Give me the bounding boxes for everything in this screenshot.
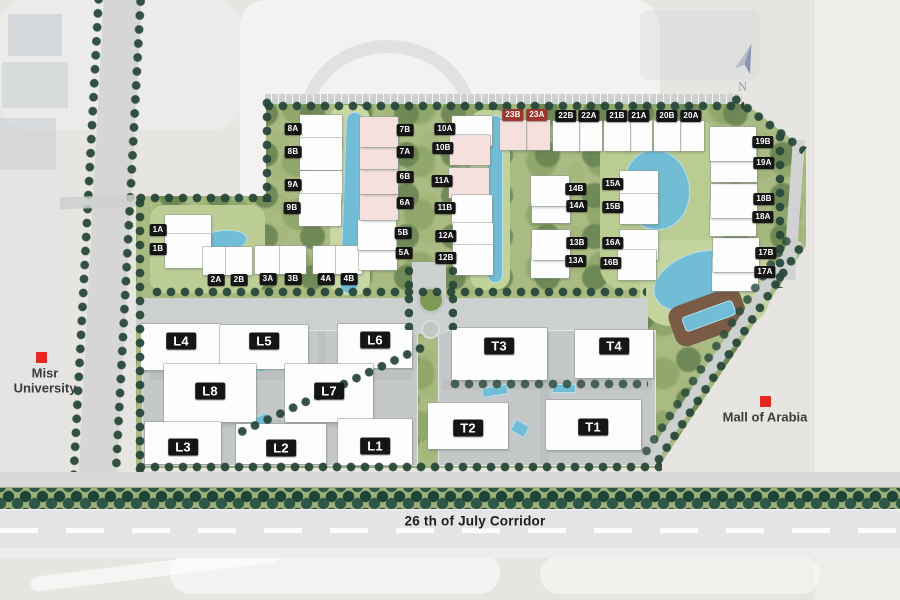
building-15B (620, 194, 658, 224)
plot-label-15A[interactable]: 15A (602, 178, 623, 190)
building-11B (452, 195, 492, 225)
building-20A (678, 121, 704, 151)
building-6A (360, 190, 398, 220)
plot-label-13B[interactable]: 13B (566, 237, 587, 249)
plot-label-L1[interactable]: L1 (360, 438, 390, 455)
plot-label-3B[interactable]: 3B (285, 273, 302, 285)
plot-label-2B[interactable]: 2B (231, 274, 248, 286)
plot-label-4B[interactable]: 4B (341, 273, 358, 285)
plot-label-1B[interactable]: 1B (150, 243, 167, 255)
interchange-ramp (540, 556, 820, 594)
corridor-tree-line (0, 488, 900, 509)
plot-label-21A[interactable]: 21A (628, 110, 649, 122)
mall-of-arabia-marker (760, 396, 771, 407)
north-arrow-icon (728, 42, 766, 78)
north-label: N (738, 79, 747, 95)
plot-label-5B[interactable]: 5B (395, 227, 412, 239)
background-terrain-patch (0, 170, 70, 480)
plot-label-7A[interactable]: 7A (397, 146, 414, 158)
mall-of-arabia-label: Mall of Arabia (723, 409, 808, 424)
plot-label-L3[interactable]: L3 (168, 439, 198, 456)
misr-university-label: MisrUniversity (14, 366, 77, 397)
building-7B (360, 117, 398, 147)
background-building (2, 62, 68, 108)
plot-label-11A[interactable]: 11A (432, 175, 453, 187)
corridor-green-verge (0, 487, 900, 509)
building-5B (358, 220, 396, 250)
plot-label-T1[interactable]: T1 (578, 419, 608, 436)
plot-label-2A[interactable]: 2A (208, 274, 225, 286)
plot-label-9A[interactable]: 9A (285, 179, 302, 191)
plot-label-19A[interactable]: 19A (753, 157, 774, 169)
plot-label-20A[interactable]: 20A (680, 110, 701, 122)
misr-university-label-line: University (14, 381, 77, 396)
mall-of-arabia-label-line: Mall of Arabia (723, 409, 808, 424)
plot-label-T2[interactable]: T2 (453, 420, 483, 437)
building-12B (453, 245, 493, 275)
building-8B (300, 138, 342, 170)
misr-university-label-line: Misr (14, 366, 77, 381)
plot-label-12B[interactable]: 12B (435, 252, 456, 264)
plot-label-3A[interactable]: 3A (260, 273, 277, 285)
plot-label-L8[interactable]: L8 (195, 383, 225, 400)
corridor-label: 26 th of July Corridor (405, 514, 546, 529)
plot-label-18B[interactable]: 18B (753, 193, 774, 205)
plot-label-6A[interactable]: 6A (397, 197, 414, 209)
plot-label-18A[interactable]: 18A (752, 211, 773, 223)
building-18B (711, 184, 757, 218)
plot-label-23B[interactable]: 23B (502, 109, 523, 121)
south-edge-tree-line (134, 460, 662, 473)
plot-label-10A[interactable]: 10A (434, 123, 455, 135)
notch-tree-line (134, 191, 274, 204)
boulevard-tree-line (446, 264, 457, 330)
roundabout-small (421, 320, 440, 339)
plot-label-16A[interactable]: 16A (602, 237, 623, 249)
building-20B (654, 121, 680, 151)
building-14B (531, 176, 569, 206)
masterplan-map: 1A1B2A2B3A3B4A4B5A5B6A6B7A7B8A8B9A9B10A1… (0, 0, 900, 600)
plot-label-23A[interactable]: 23A (526, 109, 547, 121)
lane-marking (0, 528, 900, 533)
building-23B (500, 120, 526, 150)
building-23A (524, 120, 550, 150)
background-building (0, 118, 56, 170)
plot-label-L7[interactable]: L7 (314, 383, 344, 400)
plot-label-7B[interactable]: 7B (397, 124, 414, 136)
plot-label-20B[interactable]: 20B (656, 110, 677, 122)
plot-label-16B[interactable]: 16B (600, 257, 621, 269)
plot-label-1A[interactable]: 1A (150, 224, 167, 236)
building-16B (618, 250, 656, 280)
plot-label-L5[interactable]: L5 (249, 333, 279, 350)
building-9B (299, 194, 341, 226)
building-19B (710, 127, 756, 161)
plot-label-22B[interactable]: 22B (555, 110, 576, 122)
frontage-road (0, 472, 900, 487)
building-13B (532, 230, 570, 260)
plot-label-T4[interactable]: T4 (599, 338, 629, 355)
plot-label-10B[interactable]: 10B (432, 142, 453, 154)
plot-label-8A[interactable]: 8A (285, 123, 302, 135)
mid-avenue-tree-line (150, 285, 646, 298)
plot-label-12A[interactable]: 12A (435, 230, 456, 242)
plot-label-17B[interactable]: 17B (755, 247, 776, 259)
plot-label-9B[interactable]: 9B (284, 202, 301, 214)
building-21B (604, 121, 630, 151)
building-3A (255, 246, 281, 274)
west-edge-tree-line (133, 196, 145, 472)
building-2B (226, 247, 252, 275)
boulevard-tree-line (402, 264, 413, 330)
office-courtyard-trees (448, 377, 648, 390)
plot-label-L6[interactable]: L6 (360, 332, 390, 349)
background-building (8, 14, 62, 56)
building-3B (280, 246, 306, 274)
plot-label-14B[interactable]: 14B (565, 183, 586, 195)
building-17B (713, 238, 759, 272)
plot-label-L2[interactable]: L2 (266, 440, 296, 457)
plot-label-21B[interactable]: 21B (606, 110, 627, 122)
plot-label-22A[interactable]: 22A (578, 110, 599, 122)
plot-label-T3[interactable]: T3 (484, 338, 514, 355)
plot-label-8B[interactable]: 8B (285, 146, 302, 158)
plot-label-11B[interactable]: 11B (435, 202, 456, 214)
misr-university-marker (36, 352, 47, 363)
building-22B (553, 121, 579, 151)
building-10B (450, 135, 490, 165)
plot-label-15B[interactable]: 15B (602, 201, 623, 213)
east-column-tree-line (773, 130, 785, 288)
plot-label-6B[interactable]: 6B (397, 171, 414, 183)
plot-label-4A[interactable]: 4A (318, 273, 335, 285)
building-11A (449, 168, 489, 198)
northwest-tree-line (260, 96, 273, 202)
slip-road (0, 548, 900, 558)
plot-label-5A[interactable]: 5A (396, 247, 413, 259)
plot-label-14A[interactable]: 14A (566, 200, 587, 212)
plot-label-19B[interactable]: 19B (752, 136, 773, 148)
plot-label-L4[interactable]: L4 (166, 333, 196, 350)
plot-label-13A[interactable]: 13A (565, 255, 586, 267)
plot-label-17A[interactable]: 17A (754, 266, 775, 278)
building-22A (576, 121, 602, 151)
